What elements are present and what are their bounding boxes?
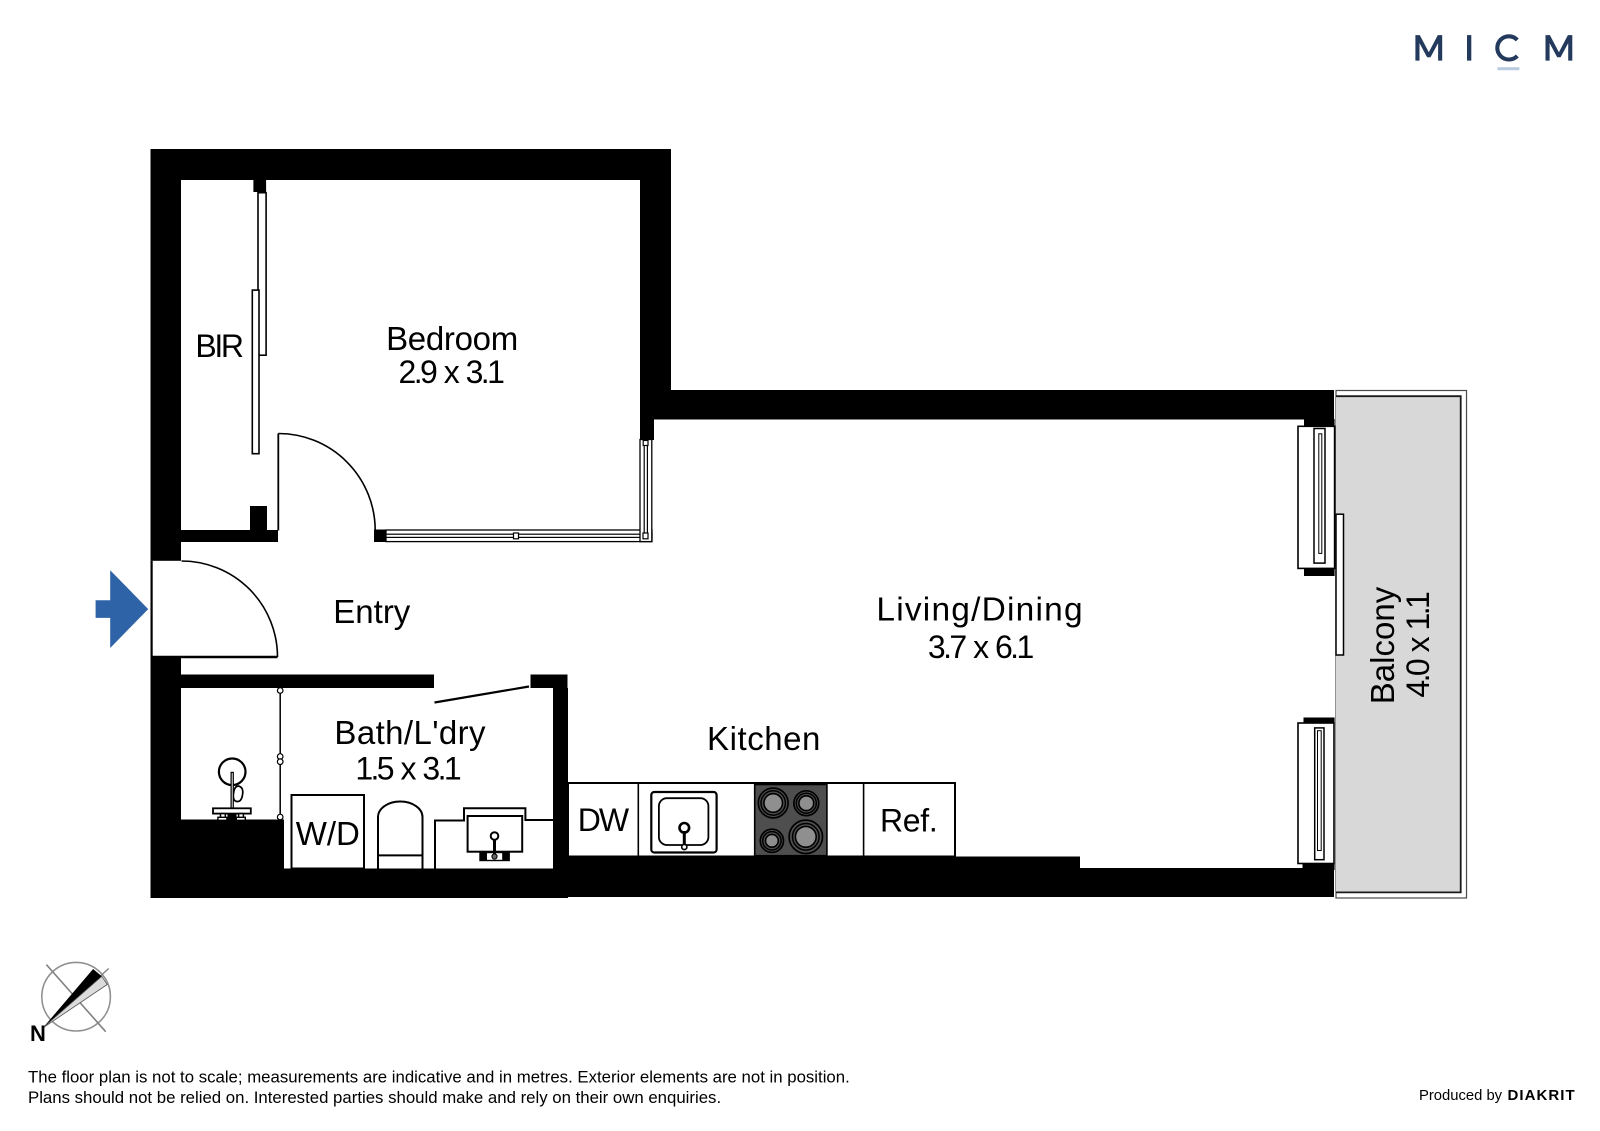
svg-text:The floor plan is not to scale: The floor plan is not to scale; measurem… [28, 1068, 850, 1087]
svg-text:DIAKRIT: DIAKRIT [1508, 1087, 1576, 1104]
svg-text:Kitchen: Kitchen [707, 720, 821, 757]
svg-text:N: N [30, 1021, 46, 1046]
svg-text:Produced by: Produced by [1419, 1088, 1503, 1104]
svg-text:W/D: W/D [296, 815, 360, 852]
svg-text:Ref.: Ref. [880, 803, 938, 839]
svg-text:Balcony: Balcony [1364, 586, 1401, 704]
svg-text:DW: DW [578, 802, 630, 838]
svg-text:BIR: BIR [195, 328, 242, 364]
svg-text:Plans should not be relied on.: Plans should not be relied on. Intereste… [28, 1088, 721, 1107]
svg-text:Bath/L'dry: Bath/L'dry [334, 714, 486, 751]
svg-text:Entry: Entry [333, 593, 411, 630]
svg-text:3.7 x 6.1: 3.7 x 6.1 [928, 629, 1034, 665]
svg-text:4.0 x 1.1: 4.0 x 1.1 [1400, 592, 1436, 698]
svg-text:2.9 x 3.1: 2.9 x 3.1 [399, 354, 505, 390]
svg-text:1.5 x 3.1: 1.5 x 3.1 [355, 751, 461, 787]
svg-text:Living/Dining: Living/Dining [876, 592, 1083, 629]
svg-text:Bedroom: Bedroom [386, 320, 518, 357]
